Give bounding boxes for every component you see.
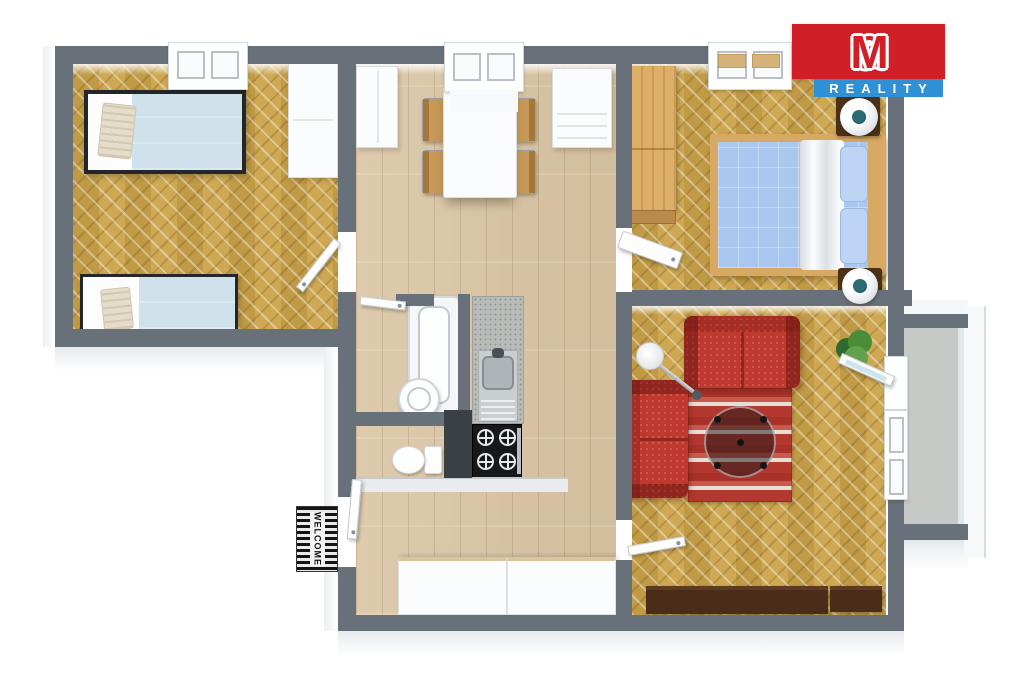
bed-pillow	[840, 146, 868, 202]
sofa-armrest	[684, 316, 698, 388]
outer-wall-face	[338, 631, 904, 655]
sofa-two-seat	[684, 316, 800, 388]
wall-left-bedroom	[55, 46, 73, 347]
wall-highlight	[632, 306, 886, 315]
doormat-text: WELCOME	[313, 512, 323, 566]
oak-wardrobe-shelf	[630, 210, 676, 224]
window-sill-kitchen	[450, 90, 518, 112]
outer-wall-face	[55, 347, 356, 371]
window-seat-cushion	[752, 54, 780, 68]
drawer-line	[557, 113, 607, 115]
sink-basin	[482, 356, 514, 390]
tv-sideboard	[646, 586, 828, 614]
wall-bathroom-right	[458, 294, 470, 414]
drawer-dresser	[552, 68, 612, 148]
window-pane	[453, 53, 481, 81]
sofa-loveseat	[626, 380, 688, 498]
wall-divider-left-mid	[338, 292, 356, 497]
cabinet-door-split	[377, 71, 379, 143]
drainboard	[481, 396, 515, 420]
stove-burner	[499, 453, 516, 470]
bed-pillow	[97, 102, 136, 159]
sofa-cushion-seam	[640, 438, 688, 441]
oak-wardrobe	[630, 66, 676, 210]
hall-cabinet	[507, 557, 616, 615]
window-bedroom-left	[168, 42, 248, 90]
hall-cabinet	[398, 557, 507, 615]
floor-lamp-base	[692, 390, 702, 400]
window-kitchen	[444, 42, 524, 92]
wall-divider-right-upper	[616, 46, 632, 228]
ball-speaker	[842, 268, 878, 304]
drawer-line	[557, 137, 607, 139]
wall-wc-bottom	[356, 477, 568, 492]
table-hub	[737, 439, 744, 446]
faucet	[492, 348, 504, 358]
sofa-cushion-seam	[741, 332, 744, 388]
bed-blanket	[128, 94, 242, 170]
wardrobe-split	[632, 148, 674, 150]
stove-knob-strip	[517, 428, 521, 474]
table-foot	[760, 416, 767, 423]
window-pane	[177, 51, 205, 79]
balcony-parapet-top	[900, 314, 968, 328]
tall-cabinet	[356, 66, 398, 148]
window-pane	[889, 417, 904, 453]
logo-reality-banner: REALITY	[814, 79, 943, 97]
logo-m: M	[850, 29, 886, 75]
sofa-armrest	[626, 484, 688, 498]
welcome-doormat: WELCOME	[296, 506, 338, 572]
bed-pillow	[840, 208, 868, 264]
mm-reality-logo: M&M	[792, 24, 945, 79]
wall-bathroom-wc-divider	[356, 412, 446, 426]
floor-lamp-shade	[636, 342, 664, 370]
stove-burner	[477, 429, 494, 446]
outer-wall-face	[43, 46, 55, 347]
window-seat-cushion	[718, 54, 746, 68]
wardrobe-door-split	[293, 119, 333, 121]
utility-shaft	[444, 410, 472, 478]
ball-speaker	[840, 98, 878, 136]
sofa-backrest	[684, 316, 800, 332]
window-pane	[211, 51, 239, 79]
bed-duvet	[800, 140, 844, 270]
balcony-parapet-right	[964, 306, 986, 558]
balcony-parapet-bottom	[900, 524, 968, 540]
toilet-bowl	[392, 446, 425, 474]
wardrobe-white	[288, 62, 338, 178]
wall-bedroom-left-bottom	[55, 329, 356, 347]
window-pane	[889, 459, 904, 495]
stove-burner	[499, 429, 516, 446]
toilet-tank	[424, 446, 442, 474]
wall-divider-left-upper	[338, 46, 356, 232]
wall-divider-right-mid	[616, 292, 632, 520]
table-foot	[760, 462, 767, 469]
window-living-room	[884, 410, 908, 500]
balcony-floor	[900, 328, 960, 524]
outer-wall-face	[324, 347, 338, 631]
wall-right-lower	[888, 498, 904, 631]
drawer-line	[557, 125, 607, 127]
sofa-armrest	[786, 316, 800, 388]
table-foot	[714, 462, 721, 469]
floor-plan: WELCOME	[0, 0, 1024, 683]
bed-pillow	[100, 287, 134, 332]
wall-divider-right-lower	[616, 560, 632, 631]
balcony-apron-bottom	[900, 540, 968, 570]
stove-burner	[477, 453, 494, 470]
sink-bowl	[407, 387, 431, 411]
table-foot	[714, 416, 721, 423]
window-pane	[487, 53, 515, 81]
doormat-text-band: WELCOME	[310, 512, 325, 566]
media-cabinet	[830, 586, 882, 612]
bed-blanket	[135, 277, 235, 329]
